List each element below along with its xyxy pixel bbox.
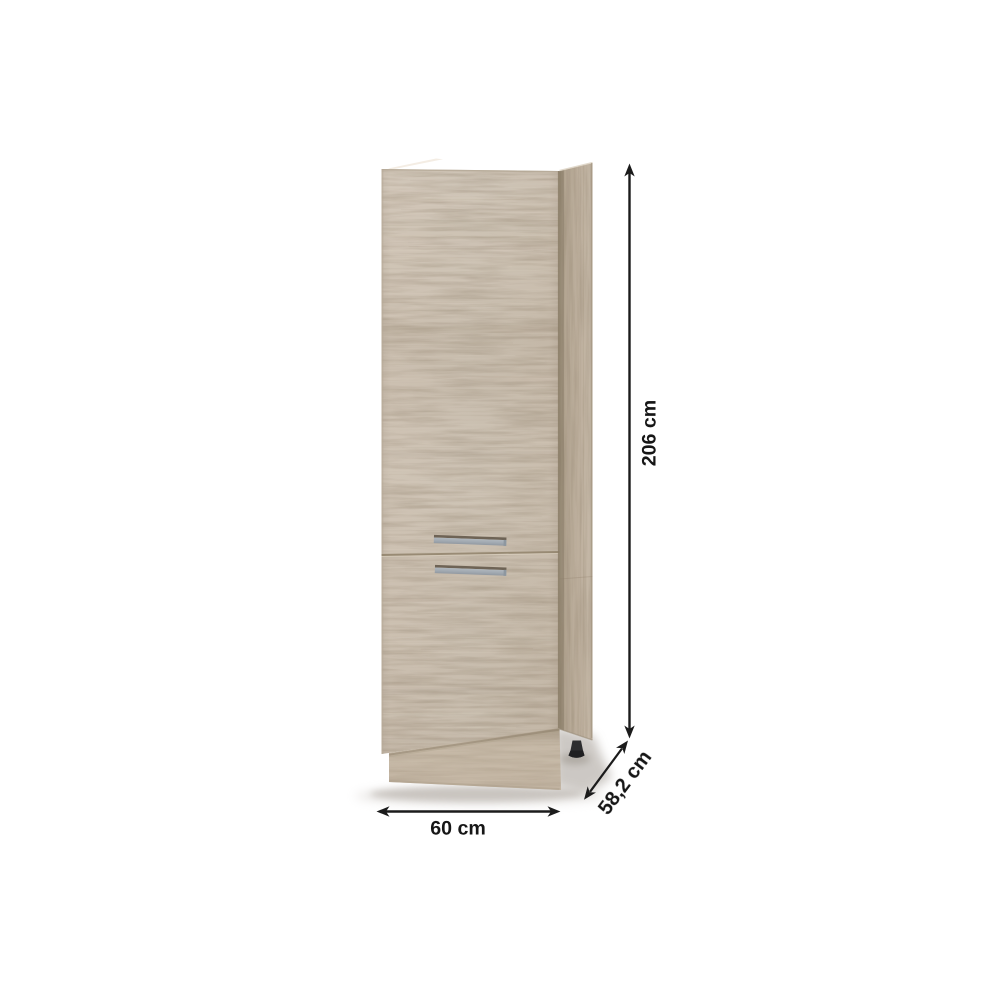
svg-text:206 cm: 206 cm xyxy=(639,400,661,466)
svg-text:60 cm: 60 cm xyxy=(430,818,486,840)
